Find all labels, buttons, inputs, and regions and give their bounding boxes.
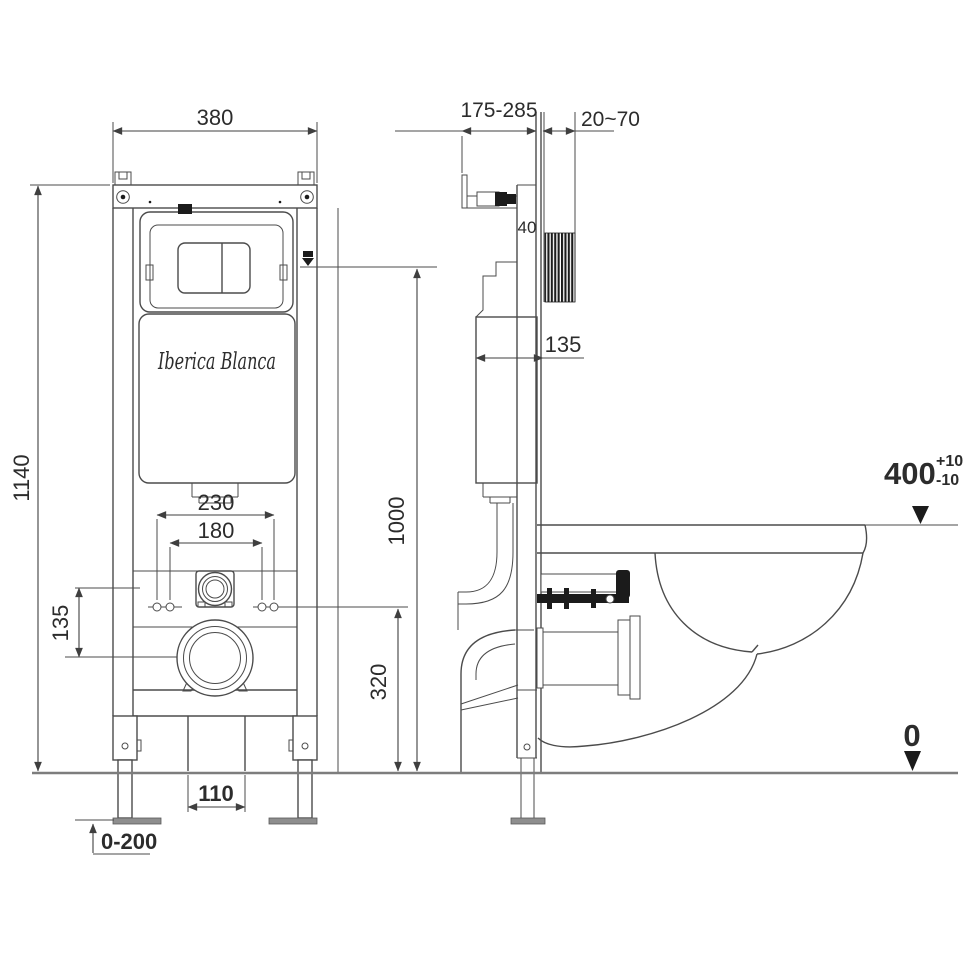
dim-cistern-depth-label: 135	[545, 332, 582, 357]
side-view: 40	[395, 99, 963, 824]
seat-height-label: 400	[884, 456, 936, 491]
level-markers: 400 +10 -10 0	[884, 453, 963, 771]
seat-height-tol-minus: -10	[936, 472, 959, 489]
front-view: Iberica Blanca	[9, 105, 437, 854]
floor-level-marker-icon	[904, 751, 921, 771]
cistern-front: Iberica Blanca	[139, 314, 295, 503]
dim-wall-gap-label: 20~70	[581, 108, 640, 131]
dim-rail-depth-label: 40	[518, 218, 537, 237]
wall-bracket	[462, 175, 517, 208]
wall-section-hatch	[545, 233, 575, 302]
dim-panel-height-label: 1000	[384, 497, 409, 546]
dim-drain-height-label: 320	[366, 664, 391, 701]
dim-height-label: 1140	[9, 454, 34, 501]
outlet-connector	[537, 616, 640, 699]
seat-height-tol-plus: +10	[936, 453, 963, 470]
plate-clip	[178, 204, 192, 214]
installation-drawing-page: Iberica Blanca	[0, 0, 970, 970]
dim-width-label: 380	[197, 105, 234, 130]
mounting-rods	[537, 570, 630, 609]
outlet-box	[188, 716, 245, 771]
dim-bolt-outer-label: 230	[198, 490, 235, 515]
mounting-bolts	[148, 603, 408, 611]
side-leg	[511, 690, 545, 824]
front-legs	[113, 716, 317, 824]
seat-level-marker-icon	[912, 506, 929, 524]
brand-logo: Iberica Blanca	[157, 349, 276, 375]
dim-frame-depth-label: 175-285	[460, 99, 537, 122]
floor-level-label: 0	[903, 718, 920, 753]
flush-plate-assembly	[140, 204, 293, 312]
level-flag-icon	[303, 251, 313, 257]
dim-outlet-width-label: 110	[198, 781, 234, 806]
drain-pipe-front	[177, 620, 253, 696]
dim-foot-adjust-label: 0-200	[101, 829, 157, 854]
waste-elbow	[461, 630, 534, 773]
technical-drawing: Iberica Blanca	[0, 0, 970, 970]
dim-bolt-inner-label: 180	[198, 518, 235, 543]
water-inlet	[196, 571, 234, 607]
dim-inlet-drop-label: 135	[48, 605, 73, 642]
cistern-side	[458, 262, 537, 630]
